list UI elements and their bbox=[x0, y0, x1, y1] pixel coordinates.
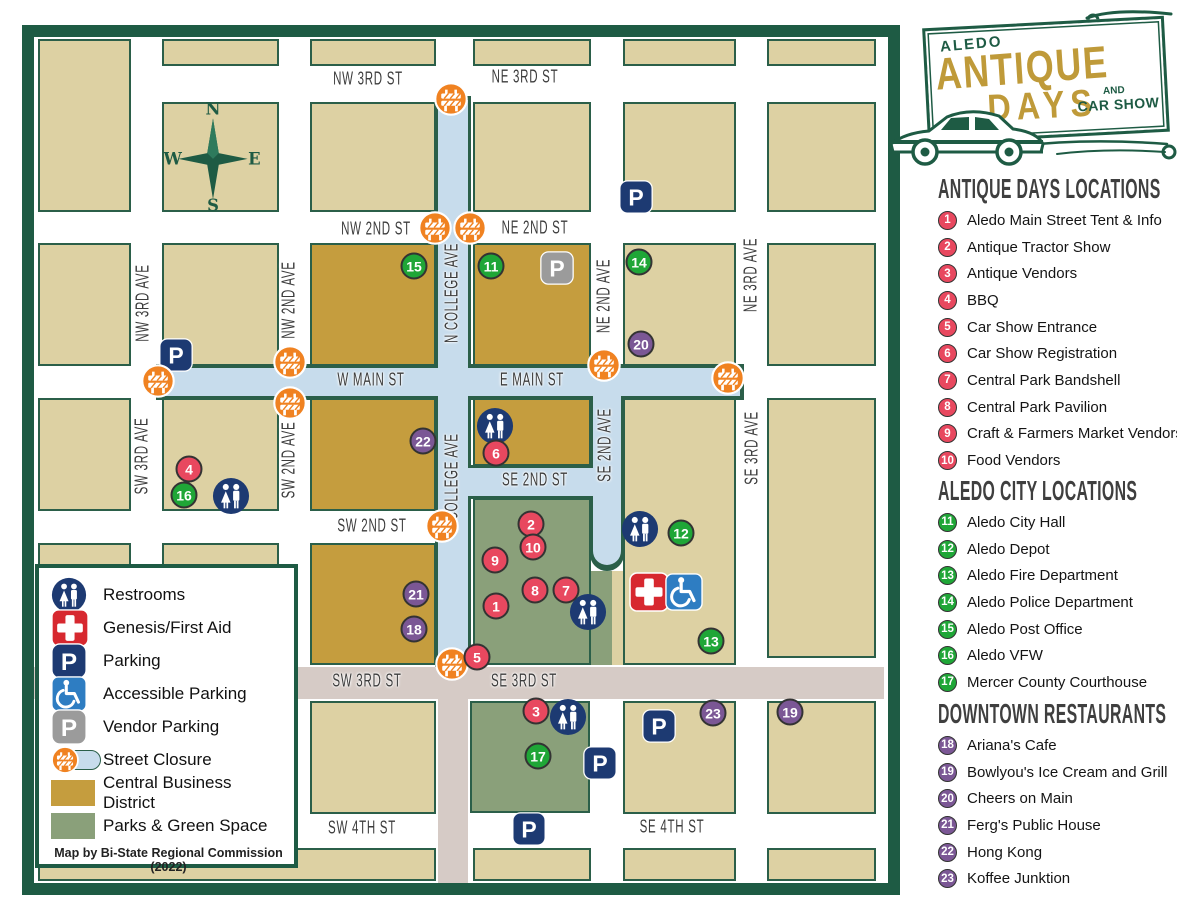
location-item-16: 16Aledo VFW bbox=[938, 642, 1177, 669]
aledo-antique-days-map-page: N S W E Restrooms Genesis/First Aid PPar… bbox=[0, 0, 1177, 908]
restroom-icon bbox=[212, 477, 250, 515]
location-item-15: 15Aledo Post Office bbox=[938, 616, 1177, 643]
barricade-icon bbox=[418, 211, 452, 245]
legend-row: Central Business District bbox=[51, 776, 286, 809]
location-label: Ariana's Cafe bbox=[967, 737, 1057, 754]
street-label: SW 4TH ST bbox=[328, 819, 396, 840]
city-block bbox=[473, 102, 591, 212]
location-number-badge: 13 bbox=[938, 566, 957, 585]
legend-row: Genesis/First Aid bbox=[51, 611, 286, 644]
map-marker-20: 20 bbox=[628, 331, 655, 358]
svg-text:P: P bbox=[651, 714, 666, 740]
street-label: SE 2ND ST bbox=[502, 471, 568, 492]
city-block bbox=[767, 102, 876, 212]
city-block bbox=[38, 39, 131, 212]
section-items: 18Ariana's Cafe19Bowlyou's Ice Cream and… bbox=[938, 732, 1177, 892]
location-item-8: 8Central Park Pavilion bbox=[938, 394, 1177, 421]
parking-icon: P bbox=[512, 812, 546, 846]
section-0: ANTIQUE DAYS LOCATIONS1Aledo Main Street… bbox=[938, 176, 1177, 474]
accessible-icon bbox=[51, 676, 103, 712]
location-label: Aledo Depot bbox=[967, 541, 1050, 558]
location-label: Aledo Fire Department bbox=[967, 567, 1118, 584]
cbd-block bbox=[310, 398, 436, 511]
location-label: Aledo VFW bbox=[967, 647, 1043, 664]
location-number-badge: 19 bbox=[938, 763, 957, 782]
legend-row: PVendor Parking bbox=[51, 710, 286, 743]
street-s-college-south bbox=[438, 699, 468, 883]
map-marker-6: 6 bbox=[483, 440, 510, 467]
map-marker-13: 13 bbox=[698, 628, 725, 655]
map-marker-15: 15 bbox=[401, 253, 428, 280]
legend-label: Restrooms bbox=[103, 585, 185, 605]
street-label: NW 3RD ST bbox=[333, 70, 403, 91]
barricade-icon bbox=[711, 361, 745, 395]
map-marker-8: 8 bbox=[522, 577, 549, 604]
location-number-badge: 6 bbox=[938, 344, 957, 363]
city-block bbox=[38, 243, 131, 366]
location-item-19: 19Bowlyou's Ice Cream and Grill bbox=[938, 759, 1177, 786]
map-marker-17: 17 bbox=[525, 743, 552, 770]
location-item-1: 1Aledo Main Street Tent & Info bbox=[938, 207, 1177, 234]
street-label: SE 4TH ST bbox=[640, 818, 705, 839]
swatch-park-swatch bbox=[51, 813, 103, 839]
map-marker-18: 18 bbox=[401, 616, 428, 643]
section-2: DOWNTOWN RESTAURANTS18Ariana's Cafe19Bow… bbox=[938, 701, 1177, 892]
city-block bbox=[38, 398, 131, 511]
legend-items: Restrooms Genesis/First Aid PParking Acc… bbox=[51, 578, 286, 842]
location-item-9: 9Craft & Farmers Market Vendors bbox=[938, 421, 1177, 448]
parking-icon: P bbox=[642, 709, 676, 743]
street-label: NW 2ND ST bbox=[341, 220, 411, 241]
location-item-5: 5Car Show Entrance bbox=[938, 314, 1177, 341]
location-item-17: 17Mercer County Courthouse bbox=[938, 669, 1177, 696]
street-label: N COLLEGE AVE bbox=[443, 243, 464, 343]
city-block bbox=[473, 848, 591, 881]
svg-text:P: P bbox=[592, 751, 607, 777]
vintage-car-icon bbox=[885, 100, 1055, 172]
location-label: Cheers on Main bbox=[967, 790, 1073, 807]
location-item-2: 2Antique Tractor Show bbox=[938, 234, 1177, 261]
location-number-badge: 22 bbox=[938, 843, 957, 862]
location-item-14: 14Aledo Police Department bbox=[938, 589, 1177, 616]
legend-label: Genesis/First Aid bbox=[103, 618, 232, 638]
location-number-badge: 3 bbox=[938, 264, 957, 283]
street-label: SW 3RD ST bbox=[332, 672, 401, 693]
street-label: SW 2ND AVE bbox=[280, 422, 301, 499]
barricade-icon bbox=[425, 509, 459, 543]
location-item-20: 20Cheers on Main bbox=[938, 785, 1177, 812]
map-legend: Restrooms Genesis/First Aid PParking Acc… bbox=[35, 564, 298, 868]
city-block bbox=[767, 398, 876, 658]
vendor-icon: P bbox=[51, 709, 103, 745]
location-number-badge: 20 bbox=[938, 789, 957, 808]
map-marker-21: 21 bbox=[403, 581, 430, 608]
barricade-icon bbox=[273, 345, 307, 379]
street-label: NE 2ND AVE bbox=[595, 259, 616, 333]
location-item-4: 4BBQ bbox=[938, 287, 1177, 314]
barricade-icon bbox=[273, 386, 307, 420]
svg-text:P: P bbox=[521, 817, 536, 843]
location-number-badge: 12 bbox=[938, 540, 957, 559]
map-marker-16: 16 bbox=[171, 482, 198, 509]
map-marker-14: 14 bbox=[626, 249, 653, 276]
section-items: 11Aledo City Hall12Aledo Depot13Aledo Fi… bbox=[938, 509, 1177, 696]
location-item-21: 21Ferg's Public House bbox=[938, 812, 1177, 839]
location-item-10: 10Food Vendors bbox=[938, 447, 1177, 474]
location-item-23: 23Koffee Junktion bbox=[938, 865, 1177, 892]
map-credit: Map by Bi-State Regional Commission (202… bbox=[51, 846, 286, 874]
location-number-badge: 15 bbox=[938, 620, 957, 639]
location-label: Central Park Bandshell bbox=[967, 372, 1120, 389]
map-marker-4: 4 bbox=[176, 456, 203, 483]
location-item-11: 11Aledo City Hall bbox=[938, 509, 1177, 536]
street-closure-icon bbox=[51, 746, 103, 774]
street-label: SW 2ND ST bbox=[337, 517, 406, 538]
street-label: NE 2ND ST bbox=[502, 219, 569, 240]
city-block bbox=[162, 39, 279, 66]
street-label: SE 3RD ST bbox=[491, 672, 557, 693]
location-label: Car Show Entrance bbox=[967, 319, 1097, 336]
location-label: Antique Tractor Show bbox=[967, 239, 1110, 256]
street-label: SW 3RD AVE bbox=[133, 418, 154, 495]
map-marker-9: 9 bbox=[482, 547, 509, 574]
location-label: Food Vendors bbox=[967, 452, 1060, 469]
barricade-icon bbox=[141, 364, 175, 398]
barricade-icon bbox=[587, 348, 621, 382]
location-number-badge: 21 bbox=[938, 816, 957, 835]
svg-text:P: P bbox=[628, 185, 643, 211]
location-item-7: 7Central Park Bandshell bbox=[938, 367, 1177, 394]
section-title: DOWNTOWN RESTAURANTS bbox=[938, 698, 1166, 728]
map-marker-1: 1 bbox=[483, 593, 510, 620]
location-number-badge: 16 bbox=[938, 646, 957, 665]
restroom-icon bbox=[549, 698, 587, 736]
location-number-badge: 10 bbox=[938, 451, 957, 470]
swatch-cbd-swatch bbox=[51, 780, 103, 806]
svg-text:N: N bbox=[206, 101, 221, 119]
svg-text:E: E bbox=[248, 150, 260, 169]
legend-label: Central Business District bbox=[103, 773, 286, 813]
location-number-badge: 5 bbox=[938, 318, 957, 337]
section-title: ANTIQUE DAYS LOCATIONS bbox=[938, 173, 1161, 203]
location-label: Craft & Farmers Market Vendors bbox=[967, 425, 1177, 442]
firstaid-icon bbox=[51, 609, 103, 647]
firstaid-icon bbox=[629, 572, 669, 612]
map-marker-5: 5 bbox=[464, 644, 491, 671]
location-label: Koffee Junktion bbox=[967, 870, 1070, 887]
map-marker-10: 10 bbox=[520, 534, 547, 561]
city-block bbox=[310, 701, 436, 814]
location-number-badge: 14 bbox=[938, 593, 957, 612]
legend-label: Parking bbox=[103, 651, 161, 671]
svg-text:S: S bbox=[207, 196, 219, 213]
location-label: Bowlyou's Ice Cream and Grill bbox=[967, 764, 1167, 781]
city-block bbox=[473, 39, 591, 66]
location-number-badge: 2 bbox=[938, 238, 957, 257]
legend-row: PParking bbox=[51, 644, 286, 677]
street-label: SE 2ND AVE bbox=[596, 408, 617, 482]
parking-icon: P bbox=[583, 746, 617, 780]
location-item-12: 12Aledo Depot bbox=[938, 536, 1177, 563]
street-label: NW 2ND AVE bbox=[280, 261, 301, 338]
location-number-badge: 11 bbox=[938, 513, 957, 532]
svg-text:W: W bbox=[163, 150, 182, 169]
svg-text:P: P bbox=[61, 649, 77, 676]
legend-row: Accessible Parking bbox=[51, 677, 286, 710]
city-block bbox=[310, 102, 436, 212]
vendor-icon: P bbox=[540, 251, 574, 285]
restroom-icon bbox=[51, 577, 103, 613]
section-1: ALEDO CITY LOCATIONS11Aledo City Hall12A… bbox=[938, 478, 1177, 696]
section-items: 1Aledo Main Street Tent & Info2Antique T… bbox=[938, 207, 1177, 474]
legend-label: Vendor Parking bbox=[103, 717, 219, 737]
location-label: Car Show Registration bbox=[967, 345, 1117, 362]
legend-label: Street Closure bbox=[103, 750, 212, 770]
location-item-13: 13Aledo Fire Department bbox=[938, 562, 1177, 589]
legend-row: Parks & Green Space bbox=[51, 809, 286, 842]
map-marker-22: 22 bbox=[410, 428, 437, 455]
location-item-6: 6Car Show Registration bbox=[938, 340, 1177, 367]
location-number-badge: 7 bbox=[938, 371, 957, 390]
legend-label: Accessible Parking bbox=[103, 684, 247, 704]
location-label: Aledo Main Street Tent & Info bbox=[967, 212, 1162, 229]
svg-text:P: P bbox=[549, 256, 564, 282]
street-label: NE 3RD AVE bbox=[742, 238, 763, 312]
location-label: Ferg's Public House bbox=[967, 817, 1101, 834]
compass-rose: N S W E bbox=[163, 101, 263, 213]
location-number-badge: 1 bbox=[938, 211, 957, 230]
location-number-badge: 23 bbox=[938, 869, 957, 888]
location-item-18: 18Ariana's Cafe bbox=[938, 732, 1177, 759]
event-logo: ALEDO ANTIQUE DAYS AND CAR SHOW bbox=[893, 4, 1177, 176]
city-block bbox=[767, 848, 876, 881]
location-item-3: 3Antique Vendors bbox=[938, 260, 1177, 287]
accessible-icon bbox=[665, 573, 703, 611]
legend-label: Parks & Green Space bbox=[103, 816, 267, 836]
location-label: Aledo Post Office bbox=[967, 621, 1083, 638]
section-title: ALEDO CITY LOCATIONS bbox=[938, 475, 1137, 505]
map-marker-11: 11 bbox=[478, 253, 505, 280]
street-label: SE 3RD AVE bbox=[743, 411, 764, 485]
restroom-icon bbox=[621, 510, 659, 548]
map-marker-3: 3 bbox=[523, 698, 550, 725]
location-item-22: 22Hong Kong bbox=[938, 839, 1177, 866]
map-marker-23: 23 bbox=[700, 700, 727, 727]
location-number-badge: 9 bbox=[938, 424, 957, 443]
logo-carshow: CAR SHOW bbox=[1077, 94, 1160, 114]
location-number-badge: 8 bbox=[938, 398, 957, 417]
city-block bbox=[767, 39, 876, 66]
location-label: Central Park Pavilion bbox=[967, 399, 1107, 416]
city-block bbox=[767, 243, 876, 366]
map-marker-12: 12 bbox=[668, 520, 695, 547]
map-marker-19: 19 bbox=[777, 699, 804, 726]
location-label: Antique Vendors bbox=[967, 265, 1077, 282]
location-number-badge: 17 bbox=[938, 673, 957, 692]
svg-text:P: P bbox=[61, 715, 77, 742]
city-block bbox=[310, 39, 436, 66]
location-label: Aledo City Hall bbox=[967, 514, 1065, 531]
location-number-badge: 18 bbox=[938, 736, 957, 755]
street-label: NW 3RD AVE bbox=[134, 264, 155, 341]
legend-row: Restrooms bbox=[51, 578, 286, 611]
map-marker-7: 7 bbox=[553, 577, 580, 604]
parking-icon: P bbox=[51, 643, 103, 679]
street-label: NE 3RD ST bbox=[492, 68, 559, 89]
barricade-icon bbox=[453, 211, 487, 245]
closed-street-main-st bbox=[160, 368, 740, 396]
barricade-icon bbox=[434, 82, 468, 116]
location-label: Hong Kong bbox=[967, 844, 1042, 861]
city-block bbox=[623, 848, 736, 881]
street-label: E MAIN ST bbox=[500, 371, 564, 392]
city-block bbox=[623, 39, 736, 66]
street-label: W MAIN ST bbox=[337, 371, 404, 392]
location-number-badge: 4 bbox=[938, 291, 957, 310]
location-label: Mercer County Courthouse bbox=[967, 674, 1147, 691]
legend-row: Street Closure bbox=[51, 743, 286, 776]
parking-icon: P bbox=[619, 180, 653, 214]
location-label: Aledo Police Department bbox=[967, 594, 1133, 611]
location-label: BBQ bbox=[967, 292, 999, 309]
